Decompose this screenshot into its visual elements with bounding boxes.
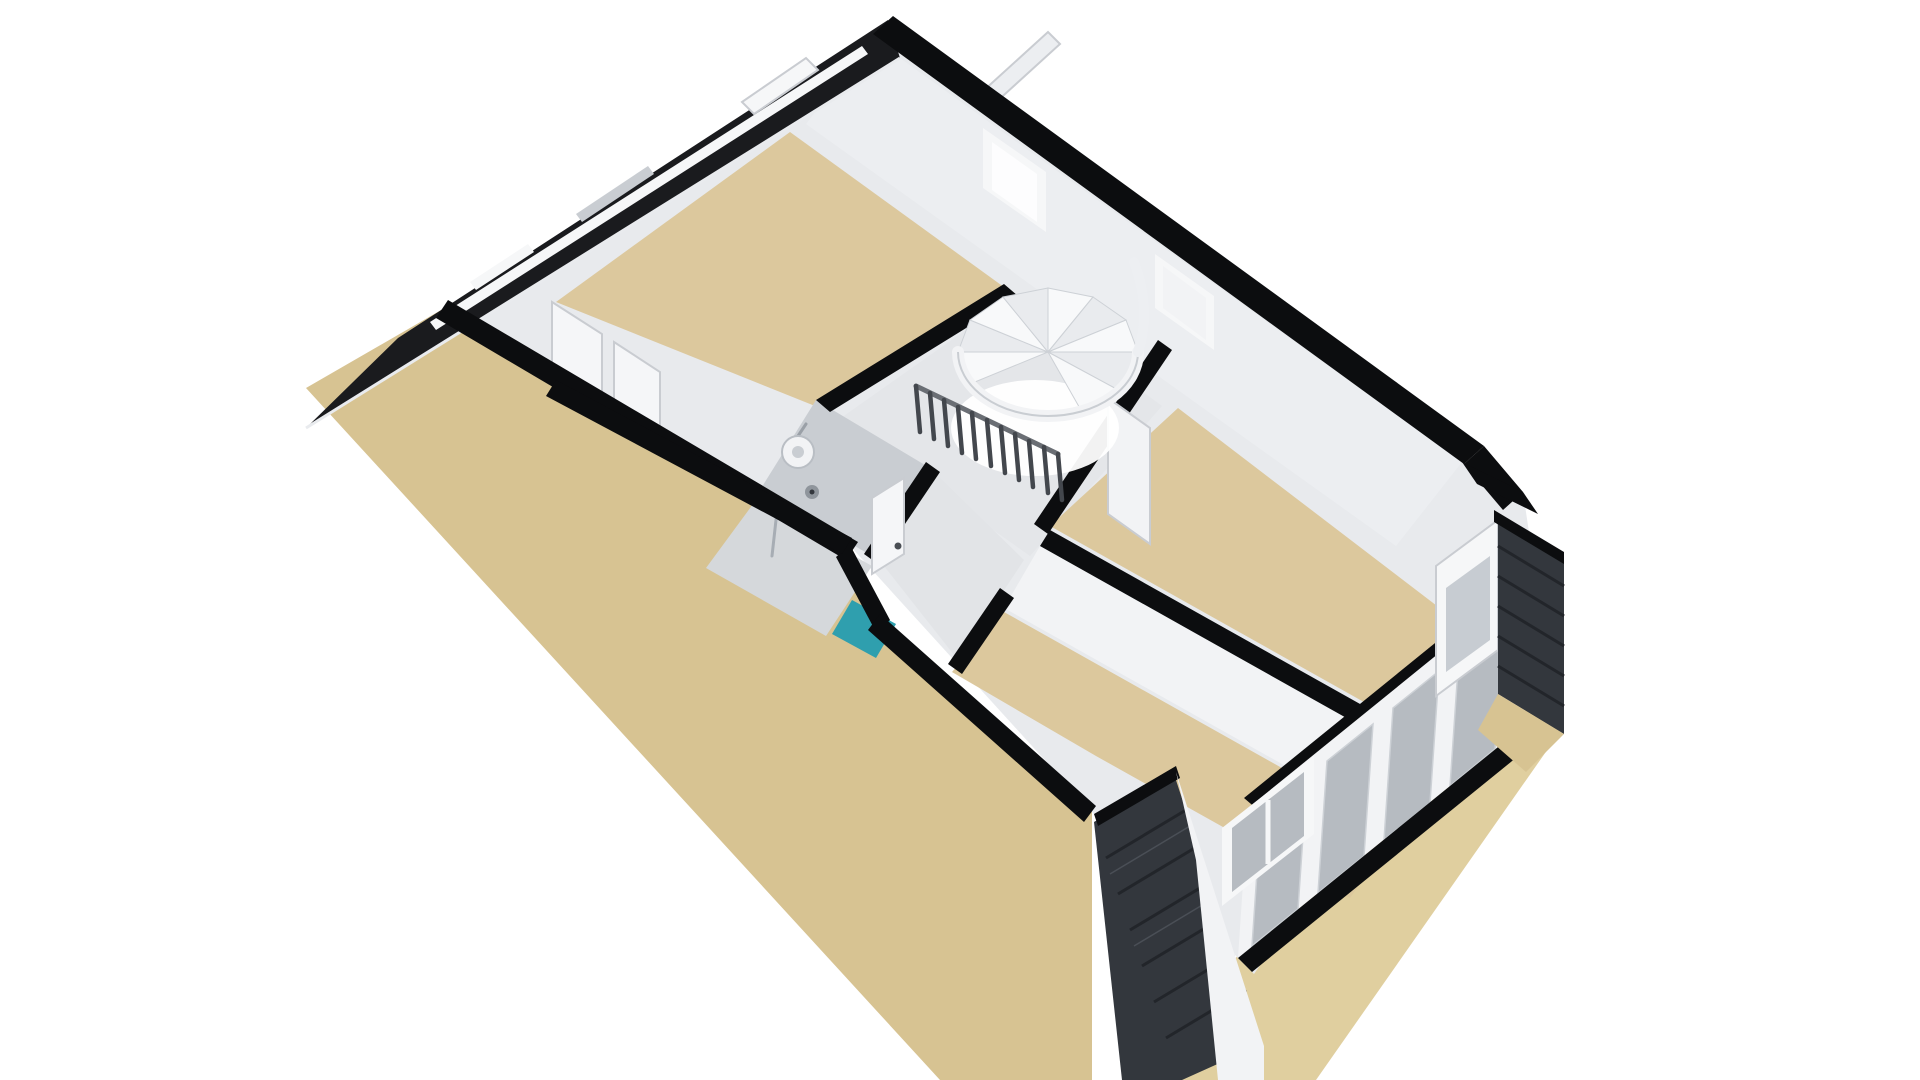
- bathroom-door-handle: [895, 543, 902, 550]
- shower-valve-handle: [810, 490, 815, 495]
- floorplan-3d-render: [0, 0, 1920, 1080]
- floorplan-viewport: [0, 0, 1920, 1080]
- shower-head-center: [792, 446, 804, 458]
